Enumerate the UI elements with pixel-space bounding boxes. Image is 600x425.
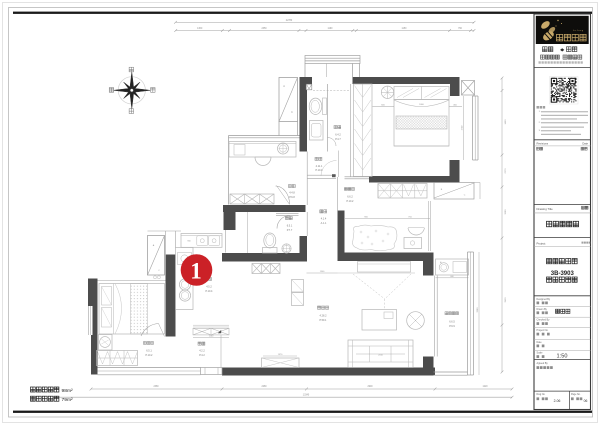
svg-text:4.28.2: 4.28.2 <box>320 315 328 318</box>
svg-text:3380: 3380 <box>477 307 479 313</box>
svg-text:C: C <box>291 111 293 114</box>
svg-text:4.4.8: 4.4.8 <box>289 192 295 195</box>
svg-text:4.5.2: 4.5.2 <box>206 286 212 289</box>
svg-text:1700: 1700 <box>461 125 463 130</box>
svg-text:L e . f e n g: L e . f e n g <box>573 30 583 32</box>
svg-text:750: 750 <box>408 217 412 219</box>
svg-text:6.6.2: 6.6.2 <box>347 196 353 199</box>
svg-text:B: B <box>441 189 443 191</box>
svg-text:760: 760 <box>458 28 463 30</box>
svg-text:Page No.: Page No. <box>571 394 581 396</box>
svg-text:4.11.1: 4.11.1 <box>316 165 323 168</box>
svg-text:2270: 2270 <box>505 168 507 174</box>
svg-text:1500: 1500 <box>320 271 325 273</box>
svg-text:A: A <box>153 244 155 247</box>
svg-text:3080: 3080 <box>505 209 507 215</box>
svg-text:Dwg No.: Dwg No. <box>537 394 546 396</box>
svg-text:P.7.7: P.7.7 <box>287 229 293 232</box>
svg-text:1160: 1160 <box>209 336 214 338</box>
svg-text:6.5.1: 6.5.1 <box>146 350 152 353</box>
svg-text:2280: 2280 <box>261 386 267 388</box>
svg-text:1800: 1800 <box>419 104 424 106</box>
svg-text:P.9.9: P.9.9 <box>449 325 455 328</box>
svg-text:P.10.2: P.10.2 <box>146 354 154 357</box>
svg-text:Designed By: Designed By <box>537 298 551 301</box>
svg-text:6.4.2: 6.4.2 <box>335 134 341 137</box>
svg-text:4.1.4: 4.1.4 <box>321 217 327 220</box>
svg-text:Scale: Scale <box>537 352 544 355</box>
svg-text:Date: Date <box>537 341 543 344</box>
svg-text:Revisions: Revisions <box>537 141 549 145</box>
svg-text:P.10.4: P.10.4 <box>316 169 324 172</box>
svg-text:Drawing Title: Drawing Title <box>537 207 554 211</box>
svg-text:2.: 2. <box>539 122 541 124</box>
svg-text:2150: 2150 <box>378 355 383 357</box>
svg-text:Project No.: Project No. <box>537 329 549 332</box>
svg-text:1.: 1. <box>539 111 541 113</box>
svg-text:79m²: 79m² <box>62 397 74 403</box>
svg-text:13340: 13340 <box>303 394 310 396</box>
svg-text:600: 600 <box>381 105 385 107</box>
svg-text:1:50: 1:50 <box>557 354 568 360</box>
svg-text:6.5.1: 6.5.1 <box>287 225 293 228</box>
svg-text:2900: 2900 <box>367 386 373 388</box>
svg-text:1220: 1220 <box>482 386 488 388</box>
svg-text:06: 06 <box>584 399 588 403</box>
svg-text:6.6.5: 6.6.5 <box>449 320 455 323</box>
svg-text:2380: 2380 <box>153 386 159 388</box>
svg-text:900: 900 <box>364 217 368 219</box>
svg-text:2350: 2350 <box>261 28 267 30</box>
svg-text:P.4.7: P.4.7 <box>335 138 341 141</box>
svg-text:4.2.2: 4.2.2 <box>199 350 205 353</box>
svg-text:1460: 1460 <box>505 119 507 125</box>
svg-text:P.4.2: P.4.2 <box>199 354 205 357</box>
svg-text:1150: 1150 <box>402 28 408 30</box>
svg-text:Date: Date <box>582 141 588 145</box>
svg-text:1: 1 <box>190 259 202 284</box>
svg-text:A: A <box>283 85 285 88</box>
svg-text:P.6.8: P.6.8 <box>289 196 295 199</box>
svg-text:1360: 1360 <box>197 28 203 30</box>
svg-text:P.59.1: P.59.1 <box>320 319 328 322</box>
svg-text:1970: 1970 <box>278 354 283 356</box>
svg-text:Agreed By: Agreed By <box>537 362 549 365</box>
svg-text:C: C <box>464 195 466 197</box>
svg-text:Drawn By: Drawn By <box>537 308 548 311</box>
svg-text:A.1.1: A.1.1 <box>321 222 327 225</box>
svg-text:C: C <box>158 270 160 272</box>
svg-text:22780: 22780 <box>286 20 293 22</box>
svg-text:P.10.2: P.10.2 <box>347 200 355 203</box>
svg-text:Checked By: Checked By <box>537 319 551 322</box>
svg-text:3B-3903: 3B-3903 <box>551 271 575 277</box>
svg-text:460: 460 <box>453 105 457 107</box>
svg-text:3920: 3920 <box>505 297 507 303</box>
svg-text:98m²: 98m² <box>62 388 74 394</box>
svg-text:1190: 1190 <box>328 28 334 30</box>
svg-text:900: 900 <box>187 241 191 243</box>
svg-text:3.: 3. <box>539 130 541 132</box>
svg-text:P.10.4: P.10.4 <box>206 290 214 293</box>
svg-text:Project:: Project: <box>537 241 547 245</box>
svg-text:2-06: 2-06 <box>554 399 561 403</box>
